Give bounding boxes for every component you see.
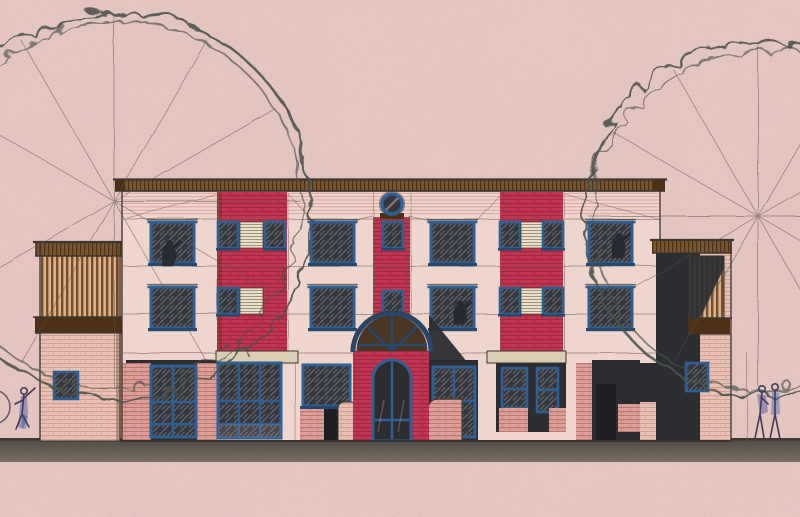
strip-window (498, 222, 522, 251)
balcony-slat-screen (40, 255, 120, 318)
strip-window (541, 222, 565, 251)
red-brick-strip-right (500, 192, 563, 352)
brick-sill-wall (549, 408, 566, 432)
red-brick-strip-left (217, 192, 287, 352)
wing-brick-wall (40, 333, 120, 441)
paired-door-left (502, 368, 527, 408)
brick-pier (122, 363, 151, 441)
tower-window (381, 222, 405, 251)
main-facade (113, 179, 746, 441)
strip-window (541, 288, 565, 317)
large-window (427, 220, 478, 267)
balcony-fascia (35, 317, 124, 333)
left-balcony-wing (33, 242, 126, 441)
architectural-drawing (0, 0, 800, 517)
right-balcony-wing (650, 240, 734, 441)
large-window (147, 285, 198, 332)
strip-window (498, 288, 522, 317)
stone-lintel (216, 351, 298, 363)
rounded-planter-wall (428, 399, 462, 441)
wing-small-window (686, 363, 708, 391)
louvre-panel (521, 288, 544, 314)
louvre-panel (240, 222, 263, 248)
brick-sill-wall (499, 408, 528, 432)
strip-window (263, 222, 287, 251)
paired-door-right (537, 368, 558, 412)
brick-pier (197, 363, 217, 441)
balcony-top-rail (652, 240, 732, 253)
elevation-canvas (0, 0, 800, 517)
entrance-door (373, 360, 411, 441)
large-window (307, 220, 358, 267)
strip-window (216, 222, 240, 251)
large-window (307, 285, 358, 332)
brick-pier (576, 363, 592, 441)
dark-doorway (596, 384, 616, 441)
entrance-arch (351, 311, 433, 441)
balcony-fascia (688, 318, 730, 334)
stone-lintel (487, 351, 566, 363)
round-window (380, 192, 405, 217)
louvre-panel (521, 222, 544, 248)
large-window (585, 220, 636, 267)
strip-window (216, 288, 240, 317)
balcony-top-rail (35, 242, 124, 256)
centre-shopfront-glazing (218, 363, 281, 438)
brick-patch (618, 404, 640, 432)
